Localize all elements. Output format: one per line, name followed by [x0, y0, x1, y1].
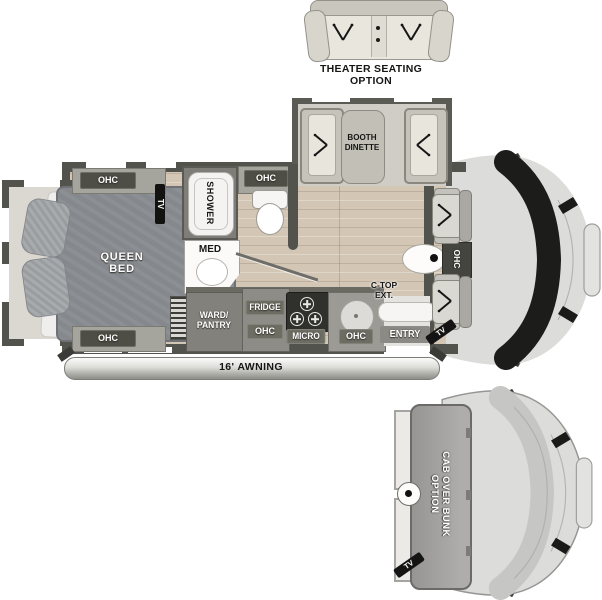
ohc-label: OHC: [244, 170, 288, 187]
ohc-label: OHC: [80, 172, 136, 189]
fridge-label: FRIDGE: [246, 300, 285, 315]
bunk-latch: [466, 428, 471, 438]
driver-seat: [432, 190, 470, 240]
med-label: MED: [186, 243, 234, 256]
front-sink: [402, 244, 446, 274]
dinette-label-line2: DINETTE: [339, 143, 385, 153]
ohc-text: OHC: [451, 244, 461, 274]
ward-pantry-label: WARD/ PANTRY: [187, 306, 240, 334]
ohc-text: OHC: [244, 173, 288, 183]
ward-label-line2: PANTRY: [187, 320, 240, 330]
theater-console-dot: [376, 26, 380, 30]
micro-label: MICRO: [287, 329, 326, 344]
recline-mark-icon: [330, 22, 356, 46]
bed-label-line2: BED: [82, 263, 162, 275]
shower-text: SHOWER: [205, 171, 215, 235]
burner-icon: [308, 312, 322, 326]
cab-over-bunk-label: CAB OVER BUNK OPTION: [426, 406, 452, 582]
fridge-text: FRIDGE: [246, 302, 285, 312]
med-text: MED: [186, 244, 234, 255]
theater-console-dot: [376, 38, 380, 42]
window: [24, 339, 60, 346]
tv-text: TV: [156, 191, 165, 217]
awning-label: 16' AWNING: [64, 358, 438, 377]
theater-seating: [308, 0, 448, 64]
bunk-latch: [466, 546, 471, 556]
bunk-label-line2: OPTION: [428, 406, 439, 582]
seat-mark-icon: [414, 132, 432, 158]
fridge: [242, 288, 290, 352]
seat-mark-icon: [436, 202, 454, 228]
bed-label-line1: QUEEN: [82, 251, 162, 263]
bunk-latch: [466, 490, 471, 500]
bunk-light-dot: [405, 490, 412, 497]
wall-top-right-stub: [450, 162, 466, 172]
ward-label-line1: WARD/: [187, 310, 240, 320]
ohc-label: OHC: [247, 324, 283, 339]
theater-console: [371, 16, 387, 57]
window: [312, 96, 350, 102]
ohc-text: OHC: [80, 175, 136, 185]
toilet-bowl: [256, 203, 284, 235]
countertop-extension: [378, 302, 436, 322]
ohc-label: OHC: [80, 330, 136, 347]
pillow: [20, 255, 72, 319]
front-sink-faucet: [430, 254, 438, 262]
ohc-text: OHC: [247, 326, 283, 336]
window: [2, 208, 9, 242]
kitchen-faucet: [354, 314, 358, 318]
recline-mark-icon: [398, 22, 424, 46]
ctop-line2: EXT.: [360, 291, 408, 301]
window: [2, 264, 9, 302]
entry-label: ENTRY: [382, 327, 428, 342]
window: [24, 180, 60, 187]
burner-icon: [300, 297, 314, 311]
cooktop: [286, 292, 330, 332]
ohc-label: OHC: [450, 244, 462, 274]
dinette-table-label: BOOTH DINETTE: [339, 128, 385, 158]
burner-icon: [290, 312, 304, 326]
rv-floorplan-diagram: THEATER SEATING OPTION: [0, 0, 602, 600]
med-sink: [196, 258, 228, 286]
entry-text: ENTRY: [382, 329, 428, 340]
ohc-text: OHC: [80, 333, 136, 343]
bedroom-tv-label: TV: [155, 191, 165, 217]
ctop-ext-label: C-TOP EXT.: [360, 281, 408, 301]
ohc-label: OHC: [339, 329, 373, 344]
theater-caption: THEATER SEATING OPTION: [296, 64, 446, 88]
window: [394, 96, 432, 102]
micro-text: MICRO: [287, 331, 326, 341]
bunk-label-line1: CAB OVER BUNK: [439, 406, 450, 582]
ohc-text: OHC: [339, 331, 373, 341]
awning-text: 16' AWNING: [64, 362, 438, 374]
seat-mark-icon: [312, 132, 330, 158]
queen-bed-label: QUEEN BED: [82, 246, 162, 280]
bath-wall: [288, 164, 298, 250]
theater-caption-line2: OPTION: [296, 76, 446, 88]
seat-mark-icon: [436, 288, 454, 314]
shower-label: SHOWER: [204, 171, 216, 235]
